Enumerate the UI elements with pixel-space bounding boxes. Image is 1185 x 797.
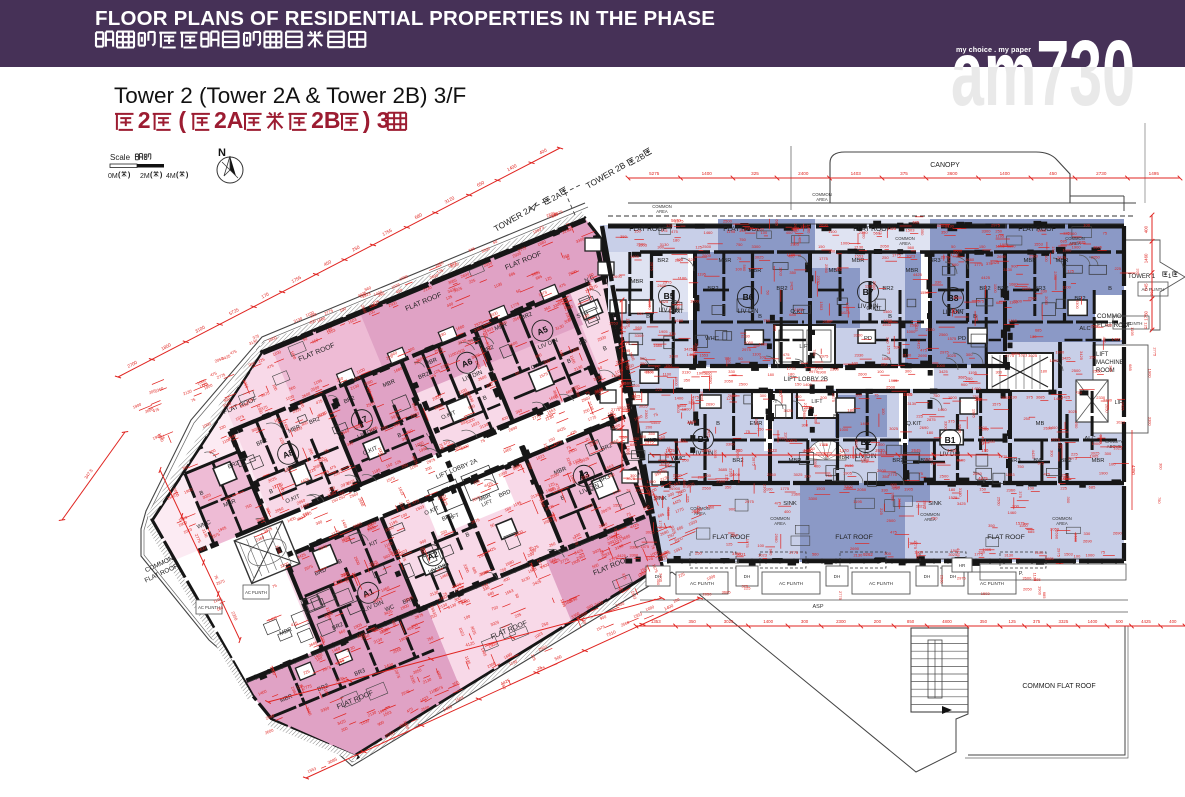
svg-text:2M: 2M xyxy=(140,173,150,180)
svg-text:1023: 1023 xyxy=(1116,420,1126,425)
svg-text:75: 75 xyxy=(954,310,959,315)
svg-text:1775: 1775 xyxy=(974,262,984,267)
svg-text:125: 125 xyxy=(726,542,733,547)
svg-text:1403: 1403 xyxy=(851,171,862,176)
svg-text:3130: 3130 xyxy=(669,353,679,358)
svg-text:1400: 1400 xyxy=(813,414,818,424)
svg-text:2775: 2775 xyxy=(789,550,799,555)
svg-text:BR2: BR2 xyxy=(707,286,718,292)
svg-text:AREA: AREA xyxy=(656,209,668,214)
svg-text:100: 100 xyxy=(881,408,886,415)
svg-text:2360: 2360 xyxy=(728,468,733,478)
svg-text:200: 200 xyxy=(874,619,882,624)
svg-text:2690: 2690 xyxy=(850,546,860,551)
svg-text:1575: 1575 xyxy=(992,402,1002,407)
svg-text:2050: 2050 xyxy=(744,340,754,345)
svg-text:1100: 1100 xyxy=(1035,550,1044,555)
svg-text:330: 330 xyxy=(739,228,746,233)
svg-text:3025: 3025 xyxy=(1091,451,1101,456)
svg-text:1000: 1000 xyxy=(978,425,988,430)
svg-text:MBR: MBR xyxy=(837,455,850,461)
svg-text:850: 850 xyxy=(907,619,915,624)
svg-text:1775: 1775 xyxy=(780,486,790,491)
svg-text:4425: 4425 xyxy=(1031,450,1036,460)
svg-text:1000: 1000 xyxy=(993,284,998,294)
svg-text:2875: 2875 xyxy=(831,393,836,403)
svg-text:AC PLINTH: AC PLINTH xyxy=(779,581,803,586)
svg-text:150: 150 xyxy=(979,244,986,249)
svg-text:180: 180 xyxy=(1040,369,1047,374)
svg-text:2875: 2875 xyxy=(752,457,757,467)
svg-text:330: 330 xyxy=(1136,268,1141,275)
svg-text:CANOPY: CANOPY xyxy=(930,162,960,169)
svg-text:1905: 1905 xyxy=(626,446,631,456)
svg-text:3300: 3300 xyxy=(813,458,818,468)
svg-text:100: 100 xyxy=(877,369,884,374)
svg-text:325: 325 xyxy=(751,171,759,176)
svg-text:1575: 1575 xyxy=(1016,520,1026,525)
svg-text:3025: 3025 xyxy=(755,254,765,259)
svg-text:75: 75 xyxy=(874,392,879,397)
svg-text:1000: 1000 xyxy=(841,240,851,245)
svg-text:1100: 1100 xyxy=(828,229,837,234)
svg-text:350: 350 xyxy=(1063,474,1070,479)
svg-text:3300: 3300 xyxy=(752,244,762,249)
svg-text:DH: DH xyxy=(834,574,841,579)
svg-text:350: 350 xyxy=(684,378,691,383)
svg-text:1400: 1400 xyxy=(972,386,982,391)
svg-text:330: 330 xyxy=(637,311,644,316)
svg-text:2975: 2975 xyxy=(645,440,655,445)
svg-text:1900: 1900 xyxy=(1147,369,1152,379)
svg-text:2975: 2975 xyxy=(1051,437,1061,442)
svg-text:250: 250 xyxy=(727,357,732,364)
svg-text:3300: 3300 xyxy=(1075,300,1080,310)
svg-text:1100: 1100 xyxy=(1062,284,1071,289)
svg-text:3300: 3300 xyxy=(1148,417,1153,427)
svg-text:750: 750 xyxy=(763,318,770,323)
svg-text:350: 350 xyxy=(941,229,948,234)
svg-text:0M: 0M xyxy=(108,173,118,180)
svg-text:75: 75 xyxy=(654,364,659,369)
svg-text:475: 475 xyxy=(774,500,781,505)
svg-text:3425: 3425 xyxy=(1062,356,1072,361)
svg-text:am730: am730 xyxy=(951,21,1135,125)
svg-text:1553: 1553 xyxy=(613,502,623,507)
svg-text:2600: 2600 xyxy=(958,424,963,434)
svg-text:330: 330 xyxy=(633,436,640,441)
svg-text:2500: 2500 xyxy=(887,518,897,523)
svg-text:3425: 3425 xyxy=(957,501,967,506)
svg-text:2500: 2500 xyxy=(940,474,950,479)
svg-text:Scale: Scale xyxy=(110,153,131,162)
svg-text:300: 300 xyxy=(829,248,836,253)
svg-text:1775: 1775 xyxy=(819,442,829,447)
svg-text:2975: 2975 xyxy=(991,223,1001,228)
svg-text:2600: 2600 xyxy=(802,410,807,420)
svg-text:545: 545 xyxy=(1144,283,1149,291)
svg-text:1900: 1900 xyxy=(1099,471,1109,476)
svg-text:180: 180 xyxy=(795,394,802,399)
svg-text:3025: 3025 xyxy=(1068,409,1078,414)
svg-text:330: 330 xyxy=(1040,289,1047,294)
svg-text:3685: 3685 xyxy=(1011,351,1021,356)
svg-text:4425: 4425 xyxy=(981,436,986,446)
svg-text:2775: 2775 xyxy=(803,403,808,413)
svg-text:1470: 1470 xyxy=(839,448,849,453)
svg-text:1553: 1553 xyxy=(854,254,864,259)
svg-text:3130: 3130 xyxy=(1004,553,1014,558)
svg-text:2B: 2B xyxy=(311,107,340,133)
svg-text:400: 400 xyxy=(1102,337,1107,344)
svg-text:75: 75 xyxy=(1103,230,1108,235)
svg-text:BR3: BR3 xyxy=(929,258,940,264)
svg-text:2775: 2775 xyxy=(888,472,898,477)
svg-text:3685: 3685 xyxy=(1036,395,1046,400)
svg-text:1400: 1400 xyxy=(630,254,640,259)
svg-text:180: 180 xyxy=(673,238,680,243)
svg-text:330: 330 xyxy=(935,280,942,285)
svg-text:1400: 1400 xyxy=(763,619,773,624)
svg-text:1503: 1503 xyxy=(819,301,824,311)
svg-text:3685: 3685 xyxy=(722,589,732,594)
svg-text:2975: 2975 xyxy=(663,280,673,285)
svg-text:180: 180 xyxy=(788,372,795,377)
svg-text:2975: 2975 xyxy=(1068,456,1078,461)
svg-text:250: 250 xyxy=(675,257,682,262)
svg-text:1023: 1023 xyxy=(841,310,851,315)
svg-text:350: 350 xyxy=(920,229,925,236)
svg-text:4800: 4800 xyxy=(942,619,952,624)
svg-text:3130: 3130 xyxy=(907,401,917,406)
svg-text:225: 225 xyxy=(879,508,884,515)
svg-text:2050: 2050 xyxy=(703,591,713,596)
svg-text:BR2: BR2 xyxy=(657,258,668,264)
svg-text:750: 750 xyxy=(1075,390,1082,395)
svg-text:330: 330 xyxy=(886,337,891,344)
svg-text:300: 300 xyxy=(905,368,912,373)
svg-text:300: 300 xyxy=(884,551,891,556)
svg-text:750: 750 xyxy=(933,393,940,398)
svg-text:1905: 1905 xyxy=(843,471,853,476)
svg-text:BR3: BR3 xyxy=(1009,458,1020,464)
svg-text:BR2: BR2 xyxy=(892,458,903,464)
svg-text:375: 375 xyxy=(1033,619,1041,624)
svg-text:100: 100 xyxy=(704,473,711,478)
svg-text:125: 125 xyxy=(1063,230,1070,235)
svg-text:1680: 1680 xyxy=(758,342,768,347)
svg-text:1503: 1503 xyxy=(779,267,784,277)
svg-text:2050: 2050 xyxy=(724,379,734,384)
svg-text:1460: 1460 xyxy=(704,230,714,235)
svg-text:3300: 3300 xyxy=(630,545,640,550)
svg-text:3425: 3425 xyxy=(1079,351,1084,361)
svg-text:350: 350 xyxy=(882,474,889,479)
svg-text:685: 685 xyxy=(789,312,796,317)
svg-text:1575: 1575 xyxy=(640,544,650,549)
svg-text:560: 560 xyxy=(812,552,819,557)
svg-text:2600: 2600 xyxy=(953,249,963,254)
svg-text:1100: 1100 xyxy=(865,284,874,289)
svg-text:330: 330 xyxy=(728,369,735,374)
svg-text:2500: 2500 xyxy=(1013,298,1023,303)
svg-text:AC PLINTH: AC PLINTH xyxy=(980,581,1004,586)
svg-text:2560: 2560 xyxy=(702,486,712,491)
svg-text:1400: 1400 xyxy=(798,234,803,244)
svg-text:350: 350 xyxy=(988,523,995,528)
svg-text:1400: 1400 xyxy=(674,395,684,400)
svg-text:1195: 1195 xyxy=(786,252,795,257)
svg-text:350: 350 xyxy=(639,434,646,439)
svg-text:1553: 1553 xyxy=(1006,472,1016,477)
svg-text:1905: 1905 xyxy=(971,409,976,419)
svg-text:4875: 4875 xyxy=(978,476,988,481)
svg-text:2130: 2130 xyxy=(1103,398,1113,403)
svg-text:BR2: BR2 xyxy=(776,286,787,292)
svg-text:1775: 1775 xyxy=(998,454,1008,459)
svg-text:400: 400 xyxy=(1169,619,1177,624)
svg-text:300: 300 xyxy=(801,619,809,624)
svg-text:1503: 1503 xyxy=(638,243,648,248)
svg-text:O.KIT: O.KIT xyxy=(668,309,684,315)
svg-text:125: 125 xyxy=(1067,269,1074,274)
svg-text:1400: 1400 xyxy=(803,382,813,387)
svg-text:375: 375 xyxy=(1037,460,1044,465)
svg-text:560: 560 xyxy=(907,245,914,250)
svg-text:2360: 2360 xyxy=(830,367,840,372)
svg-text:1100: 1100 xyxy=(678,276,687,281)
svg-text:1460: 1460 xyxy=(1112,336,1122,341)
svg-text:1503: 1503 xyxy=(1064,552,1074,557)
svg-text:(: ( xyxy=(178,107,186,133)
svg-text:200: 200 xyxy=(1012,504,1019,509)
svg-text:2975: 2975 xyxy=(745,499,755,504)
svg-text:1000: 1000 xyxy=(948,395,958,400)
svg-text:HR: HR xyxy=(959,563,966,568)
svg-text:685: 685 xyxy=(630,442,637,447)
svg-text:900: 900 xyxy=(769,549,774,556)
svg-text:225: 225 xyxy=(744,586,751,591)
svg-text:2975: 2975 xyxy=(940,350,950,355)
svg-text:AC PLINTH: AC PLINTH xyxy=(1120,321,1143,326)
svg-text:330: 330 xyxy=(881,487,888,492)
svg-text:MBR: MBR xyxy=(789,458,802,464)
svg-text:475: 475 xyxy=(620,325,627,330)
svg-text:2875: 2875 xyxy=(922,500,927,510)
svg-text:LIFT: LIFT xyxy=(1096,352,1109,358)
svg-text:475: 475 xyxy=(942,223,949,228)
svg-text:300: 300 xyxy=(801,423,808,428)
svg-text:2560: 2560 xyxy=(822,319,832,324)
svg-text:300: 300 xyxy=(855,393,862,398)
svg-text:200: 200 xyxy=(988,439,995,444)
svg-text:3425: 3425 xyxy=(790,281,795,291)
svg-text:150: 150 xyxy=(951,548,958,553)
svg-text:LIV DIN: LIV DIN xyxy=(737,309,758,315)
svg-text:2690: 2690 xyxy=(1083,538,1093,543)
svg-text:1400: 1400 xyxy=(1088,619,1098,624)
svg-text:9262: 9262 xyxy=(863,552,873,557)
svg-text:AC PLINTH: AC PLINTH xyxy=(690,581,714,586)
svg-text:2775: 2775 xyxy=(838,591,843,601)
svg-text:1503: 1503 xyxy=(816,486,826,491)
svg-text:4425: 4425 xyxy=(1061,395,1071,400)
svg-text:75: 75 xyxy=(1101,550,1106,555)
svg-text:MBR: MBR xyxy=(631,279,644,285)
svg-text:300: 300 xyxy=(804,474,811,479)
svg-text:3300: 3300 xyxy=(854,332,864,337)
svg-text:1775: 1775 xyxy=(913,540,918,550)
svg-text:B2: B2 xyxy=(861,437,872,447)
svg-text:2600: 2600 xyxy=(858,372,868,377)
svg-text:1900: 1900 xyxy=(1037,228,1047,233)
svg-text:300: 300 xyxy=(656,579,661,586)
svg-text:750: 750 xyxy=(1149,289,1154,296)
svg-text:2360: 2360 xyxy=(791,492,801,497)
svg-text:150: 150 xyxy=(1051,246,1056,253)
svg-text:DH: DH xyxy=(950,574,957,579)
svg-text:375: 375 xyxy=(669,331,676,336)
svg-text:300: 300 xyxy=(657,244,664,249)
svg-text:560: 560 xyxy=(742,265,747,272)
svg-text:2690: 2690 xyxy=(1113,530,1123,535)
svg-text:1023: 1023 xyxy=(758,553,768,558)
svg-text:1503: 1503 xyxy=(906,227,916,232)
svg-text:75: 75 xyxy=(737,256,742,261)
svg-text:225: 225 xyxy=(1108,365,1113,372)
svg-text:2875: 2875 xyxy=(1057,255,1067,260)
svg-text:3425: 3425 xyxy=(684,346,694,351)
svg-text:300: 300 xyxy=(1066,497,1071,504)
svg-text:300: 300 xyxy=(760,393,767,398)
svg-text:1000: 1000 xyxy=(839,427,849,432)
svg-text:3425: 3425 xyxy=(1121,402,1126,412)
svg-text:1575: 1575 xyxy=(887,345,892,355)
svg-text:1905: 1905 xyxy=(611,373,621,378)
svg-text:2875: 2875 xyxy=(927,417,937,422)
svg-text:3425: 3425 xyxy=(784,408,794,413)
svg-text:Tower 2 (Tower 2A & Tower 2B): Tower 2 (Tower 2A & Tower 2B) 3/F xyxy=(114,83,466,108)
svg-text:1195: 1195 xyxy=(853,499,862,504)
svg-text:2975: 2975 xyxy=(1057,548,1062,558)
svg-text:MBR: MBR xyxy=(719,258,732,264)
svg-text:1680: 1680 xyxy=(674,318,684,323)
svg-text:180: 180 xyxy=(767,372,774,377)
svg-text:1575: 1575 xyxy=(745,539,750,549)
svg-text:900: 900 xyxy=(890,482,897,487)
svg-text:225: 225 xyxy=(1060,486,1067,491)
svg-text:B: B xyxy=(758,314,762,320)
svg-text:3325: 3325 xyxy=(1059,619,1069,624)
svg-text:2360: 2360 xyxy=(644,410,649,420)
svg-text:2330: 2330 xyxy=(926,327,936,332)
svg-text:1900: 1900 xyxy=(682,407,692,412)
svg-text:2875: 2875 xyxy=(650,262,655,272)
svg-text:475: 475 xyxy=(671,229,678,234)
svg-text:3685: 3685 xyxy=(953,295,963,300)
svg-text:685: 685 xyxy=(1034,577,1041,582)
svg-text:2600: 2600 xyxy=(877,468,887,473)
svg-text:560: 560 xyxy=(952,262,959,267)
svg-text:3025: 3025 xyxy=(639,404,649,409)
svg-text:685: 685 xyxy=(1060,239,1067,244)
svg-text:2560: 2560 xyxy=(774,534,779,544)
svg-text:225: 225 xyxy=(688,257,695,262)
svg-text:3300: 3300 xyxy=(982,228,992,233)
svg-text:4425: 4425 xyxy=(668,481,673,491)
svg-text:1100: 1100 xyxy=(645,370,654,375)
svg-text:180: 180 xyxy=(927,430,934,435)
svg-text:475: 475 xyxy=(880,450,887,455)
svg-text:900: 900 xyxy=(729,506,736,511)
svg-text:150: 150 xyxy=(795,381,802,386)
svg-text:685: 685 xyxy=(1028,529,1035,534)
svg-text:1195: 1195 xyxy=(697,271,706,276)
svg-text:AREA: AREA xyxy=(1056,521,1068,526)
svg-text:2875: 2875 xyxy=(903,391,913,396)
svg-text:300: 300 xyxy=(1158,463,1163,470)
svg-text:3300: 3300 xyxy=(735,449,740,459)
svg-text:2975: 2975 xyxy=(675,219,685,224)
svg-text:AREA: AREA xyxy=(816,197,828,202)
svg-text:2560: 2560 xyxy=(802,449,812,454)
svg-text:1000: 1000 xyxy=(936,363,946,368)
svg-text:250: 250 xyxy=(695,551,702,556)
svg-text:2500: 2500 xyxy=(886,385,896,390)
svg-text:BR2: BR2 xyxy=(882,286,893,292)
svg-text:2690: 2690 xyxy=(706,401,716,406)
svg-text:1775: 1775 xyxy=(819,256,829,261)
svg-text:1460: 1460 xyxy=(705,504,715,509)
svg-text:2600: 2600 xyxy=(673,472,683,477)
svg-text:900: 900 xyxy=(754,419,759,426)
svg-text:MBR: MBR xyxy=(852,258,865,264)
svg-text:375: 375 xyxy=(900,171,908,176)
svg-text:1553: 1553 xyxy=(1034,242,1044,247)
svg-text:100: 100 xyxy=(1027,486,1034,491)
svg-text:400: 400 xyxy=(786,230,793,235)
svg-text:685: 685 xyxy=(1042,592,1047,599)
svg-text:4425: 4425 xyxy=(617,553,627,558)
svg-text:1575: 1575 xyxy=(948,495,958,500)
svg-text:225: 225 xyxy=(655,387,662,392)
svg-text:1553: 1553 xyxy=(651,420,661,425)
svg-text:125: 125 xyxy=(1057,442,1062,449)
svg-text:2690: 2690 xyxy=(1043,425,1053,430)
svg-text:B: B xyxy=(646,314,650,320)
svg-text:450: 450 xyxy=(1049,171,1057,176)
svg-text:BR2: BR2 xyxy=(732,458,743,464)
svg-text:1900: 1900 xyxy=(1038,586,1043,596)
svg-text:350: 350 xyxy=(725,484,732,489)
svg-text:1553: 1553 xyxy=(699,353,709,358)
svg-text:MBR: MBR xyxy=(1092,458,1105,464)
svg-text:2A: 2A xyxy=(214,107,243,133)
svg-text:375: 375 xyxy=(688,400,695,405)
svg-text:ASP: ASP xyxy=(812,604,823,610)
svg-text:300: 300 xyxy=(995,369,1002,374)
svg-text:O.KIT: O.KIT xyxy=(866,306,882,312)
svg-text:2300: 2300 xyxy=(836,619,846,624)
svg-text:475: 475 xyxy=(890,529,897,534)
svg-text:1900: 1900 xyxy=(1072,244,1082,249)
svg-text:2975: 2975 xyxy=(957,576,967,581)
svg-text:4M: 4M xyxy=(166,173,176,180)
svg-text:2330: 2330 xyxy=(1053,271,1058,281)
svg-text:350: 350 xyxy=(648,431,655,436)
svg-text:3025: 3025 xyxy=(713,449,718,459)
svg-text:2330: 2330 xyxy=(741,334,751,339)
